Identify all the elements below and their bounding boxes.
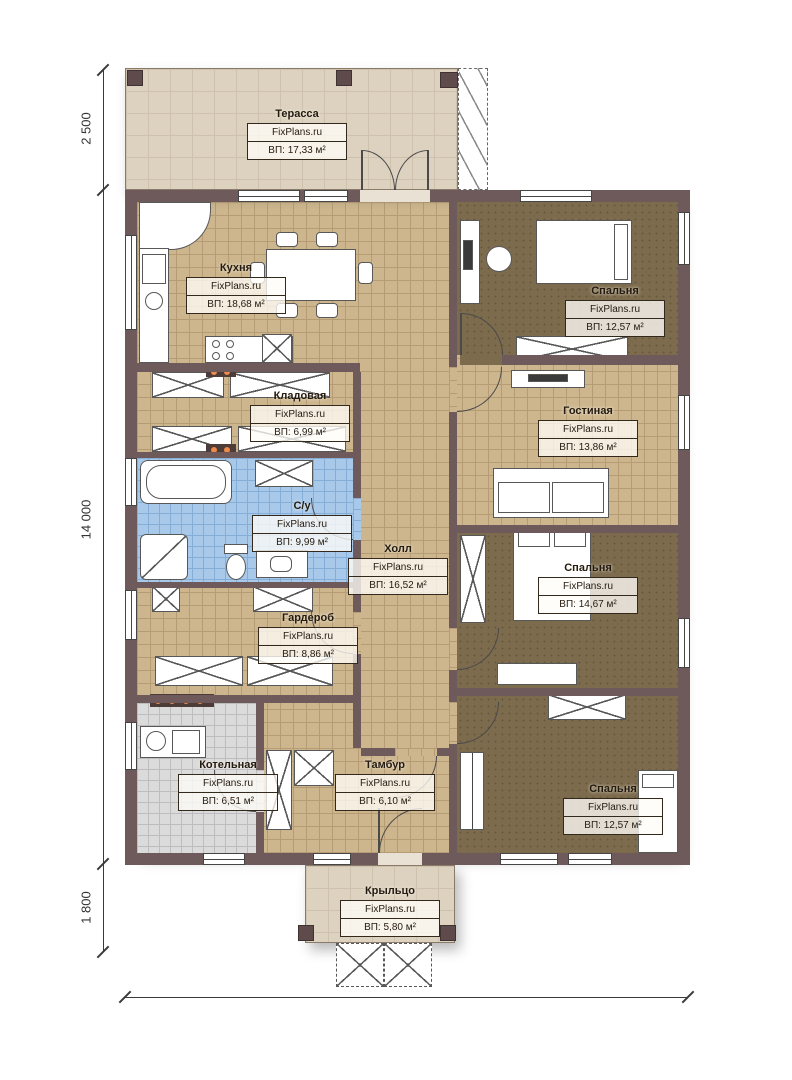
brand-link: FixPlans.ru xyxy=(341,901,439,918)
wall-spine xyxy=(449,744,457,853)
wardrobe xyxy=(253,586,313,612)
dim-line-bottom xyxy=(125,997,688,998)
bed-pillow xyxy=(614,224,628,280)
room-label-bathroom: С/у FixPlans.ruВП: 9,99 м² xyxy=(252,500,352,552)
window xyxy=(678,395,690,450)
chair xyxy=(316,303,338,318)
wall-bedrooms-divider xyxy=(457,688,678,696)
brand-link: FixPlans.ru xyxy=(564,799,662,816)
terrace-post xyxy=(440,72,458,88)
door-leaf xyxy=(427,150,429,192)
room-label-wardrobe-room: Гардероб FixPlans.ruВП: 8,86 м² xyxy=(258,612,358,664)
terrace-post xyxy=(127,70,143,86)
room-label-bedroom-bottom: Спальня FixPlans.ruВП: 12,57 м² xyxy=(563,783,663,835)
toilet-bowl xyxy=(226,554,246,580)
brand-link: FixPlans.ru xyxy=(248,124,346,141)
door-leaf xyxy=(361,150,363,192)
bathtub-inner xyxy=(146,465,226,499)
wall-leftzone-east xyxy=(353,372,361,498)
brand-link: FixPlans.ru xyxy=(187,278,285,295)
room-label-kitchen: Кухня FixPlans.ruВП: 18,68 м² xyxy=(186,262,286,314)
porch-post xyxy=(440,925,456,941)
window xyxy=(238,190,300,202)
vanity-basin xyxy=(270,556,292,572)
window xyxy=(203,853,245,865)
brand-link: FixPlans.ru xyxy=(539,421,637,438)
porch-post xyxy=(298,925,314,941)
porch-steps xyxy=(336,943,384,987)
wall-vestibule-north xyxy=(437,748,449,756)
cabinet xyxy=(460,752,484,830)
window xyxy=(500,853,558,865)
dim-label-2500: 2 500 xyxy=(79,99,94,159)
window xyxy=(304,190,348,202)
wall-kitchen-south xyxy=(137,363,360,372)
door-leaf xyxy=(378,808,380,853)
door-gap xyxy=(449,367,457,412)
front-door-gap xyxy=(378,853,422,865)
brand-link: FixPlans.ru xyxy=(336,775,434,792)
wall-bedroomtop-south xyxy=(502,355,678,365)
tv xyxy=(528,374,568,382)
brand-link: FixPlans.ru xyxy=(259,628,357,645)
dim-label-14000: 14 000 xyxy=(79,490,94,550)
window xyxy=(568,853,612,865)
window xyxy=(520,190,592,202)
brand-link: FixPlans.ru xyxy=(349,559,447,576)
door-gap xyxy=(395,748,437,756)
room-label-hall: Холл FixPlans.ruВП: 16,52 м² xyxy=(348,543,448,595)
wall-storage-bath xyxy=(137,452,353,458)
porch-steps xyxy=(384,943,432,987)
window xyxy=(125,458,137,506)
wall-living-south xyxy=(457,525,678,533)
window xyxy=(125,722,137,770)
stove-burner xyxy=(226,352,234,360)
dim-line-left-bottom xyxy=(103,864,104,952)
door-gap xyxy=(449,628,457,670)
chair xyxy=(358,262,373,284)
dresser xyxy=(497,663,577,685)
shower xyxy=(140,534,188,580)
stove-burner xyxy=(212,340,220,348)
window xyxy=(125,590,137,640)
brand-link: FixPlans.ru xyxy=(179,775,277,792)
wall-spine xyxy=(449,202,457,367)
window xyxy=(678,618,690,668)
wall-spine xyxy=(449,670,457,702)
wall-spine xyxy=(449,412,457,628)
roof-hatch-strip xyxy=(458,68,488,190)
room-label-terrace: Терасса FixPlans.ruВП: 17,33 м² xyxy=(247,108,347,160)
dim-line-left-top xyxy=(103,70,104,190)
stove-burner xyxy=(226,340,234,348)
floor-plan: 2 500 14 000 1 800 11 760 xyxy=(0,0,792,1080)
room-label-bedroom-middle: Спальня FixPlans.ruВП: 14,67 м² xyxy=(538,562,638,614)
terrace-post xyxy=(336,70,352,86)
window xyxy=(678,212,690,265)
terrace-door-gap xyxy=(360,190,430,202)
boiler-box xyxy=(172,730,200,754)
toilet-tank xyxy=(224,544,248,554)
wall-outer-right xyxy=(678,190,690,865)
wall-wardrobe-boiler xyxy=(137,695,361,703)
room-label-bedroom-top: Спальня FixPlans.ruВП: 12,57 м² xyxy=(565,285,665,337)
wall-vestibule-north xyxy=(361,748,395,756)
wall-bath-wardrobe xyxy=(137,582,353,588)
desk-chair xyxy=(486,246,512,272)
dim-label-1800: 1 800 xyxy=(79,878,94,938)
room-label-storage: Кладовая FixPlans.ruВП: 6,99 м² xyxy=(250,390,350,442)
closet xyxy=(294,750,334,786)
sink xyxy=(145,292,163,310)
dim-line-left-middle xyxy=(103,190,104,864)
wall-boiler-vestibule xyxy=(256,812,264,853)
room-label-boiler: Котельная FixPlans.ruВП: 6,51 м² xyxy=(178,759,278,811)
bath-cabinet xyxy=(255,460,313,487)
brand-link: FixPlans.ru xyxy=(539,578,637,595)
brand-link: FixPlans.ru xyxy=(251,406,349,423)
sofa-cushion xyxy=(498,482,550,513)
room-label-porch: Крыльцо FixPlans.ruВП: 5,80 м² xyxy=(340,885,440,937)
boiler-dial xyxy=(146,731,166,751)
sofa-cushion xyxy=(552,482,604,513)
door-gap xyxy=(353,498,361,540)
chair xyxy=(316,232,338,247)
window xyxy=(313,853,351,865)
bed-pillow xyxy=(518,531,550,547)
brand-link: FixPlans.ru xyxy=(566,301,664,318)
bed-pillow xyxy=(554,531,586,547)
stove-burner xyxy=(212,352,220,360)
door-gap xyxy=(460,355,502,365)
monitor xyxy=(463,240,473,270)
room-label-living: Гостиная FixPlans.ruВП: 13,86 м² xyxy=(538,405,638,457)
wardrobe xyxy=(155,656,243,686)
wardrobe xyxy=(548,694,626,720)
chair xyxy=(276,232,298,247)
wardrobe xyxy=(152,586,180,612)
window xyxy=(125,235,137,330)
room-label-vestibule: Тамбур FixPlans.ruВП: 6,10 м² xyxy=(335,759,435,811)
door-leaf xyxy=(460,313,462,355)
door-gap xyxy=(449,702,457,744)
brand-link: FixPlans.ru xyxy=(253,516,351,533)
kitchen-island xyxy=(262,334,292,363)
fridge xyxy=(142,254,166,284)
wardrobe xyxy=(460,535,486,623)
